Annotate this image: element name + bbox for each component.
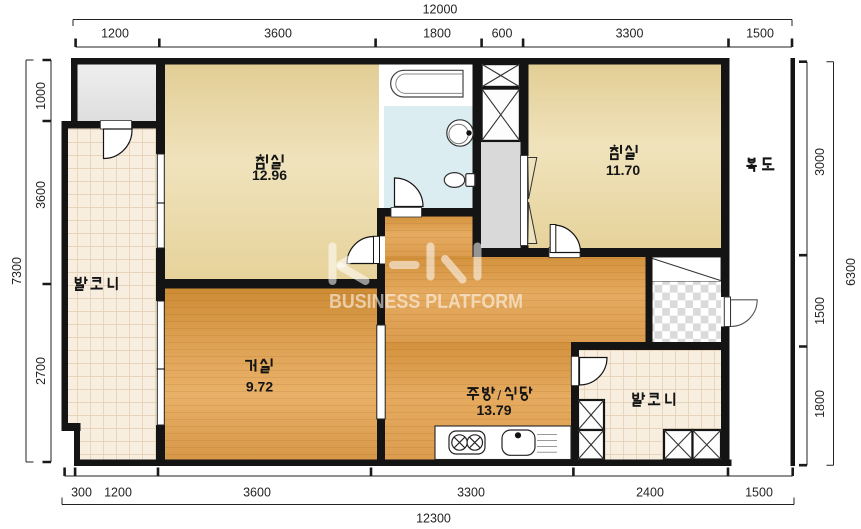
- svg-text:9.72: 9.72: [246, 379, 273, 395]
- svg-text:3000: 3000: [813, 148, 827, 176]
- svg-text:3600: 3600: [34, 181, 48, 209]
- svg-text:2700: 2700: [34, 357, 48, 385]
- svg-text:/: /: [497, 387, 501, 403]
- svg-text:1500: 1500: [813, 297, 827, 325]
- svg-text:1500: 1500: [745, 486, 773, 500]
- svg-text:13.79: 13.79: [476, 402, 511, 418]
- svg-text:1200: 1200: [101, 27, 129, 41]
- svg-text:7300: 7300: [10, 257, 24, 285]
- svg-text:3600: 3600: [264, 27, 292, 41]
- svg-text:1500: 1500: [746, 27, 774, 41]
- svg-text:3300: 3300: [616, 27, 644, 41]
- svg-text:BUSINESS PLATFORM: BUSINESS PLATFORM: [329, 291, 523, 313]
- svg-text:3600: 3600: [243, 486, 271, 500]
- svg-text:1800: 1800: [813, 390, 827, 418]
- svg-text:600: 600: [492, 27, 513, 41]
- svg-text:1200: 1200: [104, 486, 132, 500]
- svg-text:300: 300: [71, 486, 92, 500]
- svg-text:12000: 12000: [423, 3, 458, 17]
- svg-text:1000: 1000: [34, 82, 48, 110]
- svg-text:3300: 3300: [457, 486, 485, 500]
- svg-text:1800: 1800: [423, 27, 451, 41]
- svg-text:12.96: 12.96: [252, 167, 287, 183]
- svg-text:2400: 2400: [636, 486, 664, 500]
- svg-text:11.70: 11.70: [606, 162, 640, 178]
- svg-text:6300: 6300: [844, 258, 858, 286]
- svg-text:12300: 12300: [416, 512, 451, 526]
